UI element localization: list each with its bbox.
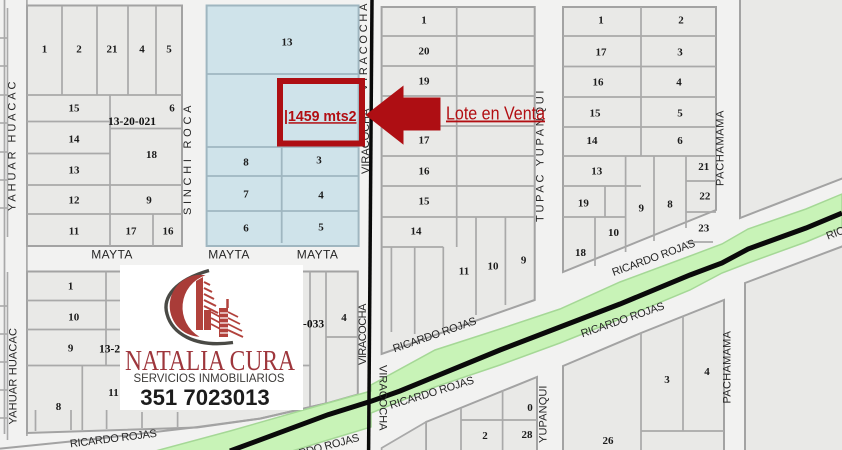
svg-text:4: 4 [139,44,145,56]
svg-text:18: 18 [146,149,158,161]
svg-text:SERVICIOS INMOBILIARIOS: SERVICIOS INMOBILIARIOS [134,372,285,385]
svg-text:16: 16 [593,77,605,89]
svg-text:15: 15 [419,196,431,208]
svg-text:1: 1 [68,281,74,293]
svg-text:351 7023013: 351 7023013 [140,385,270,410]
svg-text:7: 7 [243,189,249,201]
svg-text:6: 6 [169,103,175,115]
svg-text:PACHAMAMA: PACHAMAMA [722,330,734,403]
svg-text:22: 22 [699,191,711,203]
svg-text:13-2: 13-2 [99,344,120,356]
svg-text:12: 12 [69,195,81,207]
svg-text:1: 1 [42,44,48,56]
svg-text:6: 6 [677,135,683,147]
svg-text:-033: -033 [303,319,324,331]
svg-text:13: 13 [69,165,81,177]
svg-text:19: 19 [578,198,590,210]
svg-text:YAHUAR HUACAC: YAHUAR HUACAC [8,328,20,425]
svg-text:11: 11 [108,387,118,399]
svg-text:4: 4 [318,190,324,202]
svg-text:21: 21 [107,44,118,56]
svg-text:3: 3 [664,374,670,386]
svg-text:26: 26 [603,435,615,447]
svg-text:9: 9 [68,343,74,355]
svg-text:11: 11 [69,226,79,238]
svg-text:20: 20 [419,46,431,58]
svg-text:4: 4 [341,312,347,324]
svg-text:18: 18 [575,247,587,259]
svg-text:MAYTA: MAYTA [208,248,250,262]
svg-text:10: 10 [488,261,500,273]
svg-text:0: 0 [527,402,533,414]
svg-text:3: 3 [316,155,322,167]
svg-text:5: 5 [318,222,324,234]
svg-text:17: 17 [419,135,431,147]
svg-text:6: 6 [243,223,249,235]
svg-text:MAYTA: MAYTA [91,248,133,262]
svg-text:5: 5 [166,44,172,56]
svg-text:MAYTA: MAYTA [297,248,339,262]
svg-text:8: 8 [243,157,249,169]
svg-text:9: 9 [638,203,644,215]
svg-text:8: 8 [667,199,673,211]
svg-text:14: 14 [411,226,423,238]
svg-text:PACHAMAMA: PACHAMAMA [715,110,727,186]
svg-text:11: 11 [459,266,469,278]
svg-text:10: 10 [608,227,620,239]
svg-text:3: 3 [677,47,683,59]
svg-text:Lote en Venta: Lote en Venta [446,103,546,124]
svg-text:13: 13 [282,37,294,49]
svg-text:8: 8 [56,401,62,413]
svg-text:17: 17 [596,47,608,59]
svg-text:2: 2 [76,44,82,56]
svg-text:VIRACOCHA: VIRACOCHA [377,365,389,431]
svg-text:16: 16 [163,226,175,238]
svg-text:VIRACOCHA: VIRACOCHA [358,3,370,91]
svg-text:23: 23 [698,223,710,235]
svg-text:1: 1 [598,15,604,27]
svg-text:2: 2 [678,15,684,27]
svg-text:5: 5 [677,108,683,120]
svg-text:13-20-021: 13-20-021 [108,116,156,128]
svg-text:28: 28 [522,429,534,441]
svg-text:15: 15 [69,103,81,115]
svg-text:21: 21 [698,161,709,173]
svg-text:4: 4 [704,366,710,378]
svg-text:2: 2 [482,430,488,442]
svg-text:19: 19 [419,76,431,88]
svg-text:14: 14 [587,135,599,147]
svg-text:13: 13 [591,166,603,178]
svg-text:|1459 mts2: |1459 mts2 [284,108,357,125]
svg-text:14: 14 [69,134,81,146]
svg-text:1: 1 [421,15,427,27]
svg-text:YUPANQUI: YUPANQUI [538,385,550,443]
svg-text:9: 9 [146,195,152,207]
svg-text:4: 4 [676,77,682,89]
svg-text:17: 17 [126,226,138,238]
svg-text:16: 16 [419,166,431,178]
svg-text:VIRACOCHA: VIRACOCHA [357,303,369,365]
svg-text:YAHUAR HUACAC: YAHUAR HUACAC [7,81,19,211]
svg-text:10: 10 [68,312,80,324]
svg-text:15: 15 [590,108,602,120]
svg-text:9: 9 [521,255,527,267]
